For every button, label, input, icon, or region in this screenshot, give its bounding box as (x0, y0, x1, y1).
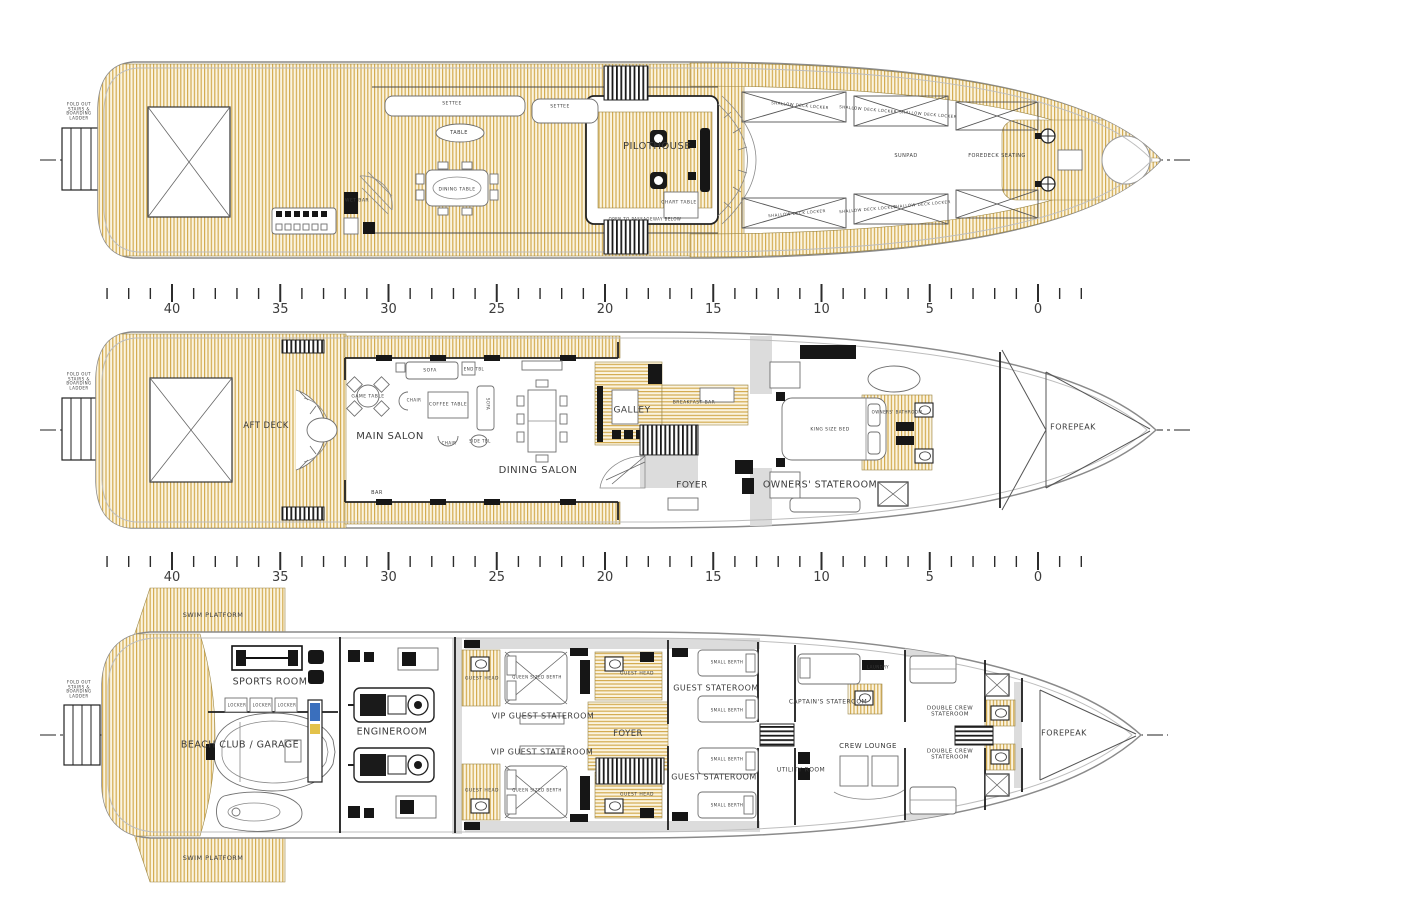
label-lower-deck-double-crew-stateroom: DOUBLE CREW STATEROOM (927, 749, 973, 762)
label-main-deck-breakfast-bar: BREAKFAST BAR (673, 400, 716, 405)
label-main-deck-chair: CHAIR (442, 442, 457, 447)
aft-open-well (150, 378, 232, 482)
label-main-deck-galley: GALLEY (613, 406, 650, 417)
label-lower-deck-locker: LOCKER (253, 704, 272, 709)
label-main-deck-bar: BAR (371, 491, 383, 497)
day-head-fixture (735, 460, 753, 474)
label-lower-deck-swim-platform: SWIM PLATFORM (183, 855, 244, 863)
ruler-1-number-40: 40 (164, 302, 181, 317)
ruler-2-number-30: 30 (380, 570, 397, 585)
anchor-hatch (1058, 150, 1082, 170)
label-lower-deck-locker: LOCKER (228, 704, 247, 709)
label-lower-deck-laundry: LAUNDRY (867, 666, 889, 671)
bridge-side-stairs-stbd (604, 220, 648, 254)
lower-deck-plan (64, 588, 1141, 882)
label-main-deck-forepeak: FOREPEAK (1050, 422, 1096, 431)
label-bridge-deck-fold-out-stairs-boarding-ladder: FOLD OUT STAIRS & BOARDING LADDER (66, 103, 91, 122)
ruler-2-number-15: 15 (705, 570, 722, 585)
label-lower-deck-crew-lounge: CREW LOUNGE (839, 742, 897, 750)
label-lower-deck-guest-stateroom: GUEST STATEROOM (673, 683, 759, 692)
grill (363, 222, 375, 234)
label-bridge-deck-dining-table: DINING TABLE (438, 187, 475, 192)
ruler-2-number-20: 20 (597, 570, 614, 585)
settee-corner (532, 99, 598, 123)
label-bridge-deck-chart-table: CHART TABLE (661, 200, 696, 205)
bridge-open-well (148, 107, 230, 217)
label-lower-deck-sports-room: SPORTS ROOM (233, 676, 308, 687)
label-lower-deck-small-berth: SMALL BERTH (711, 709, 744, 714)
label-lower-deck-beach-club-garage: BEACH CLUB / GARAGE (181, 739, 299, 750)
engine-port (348, 688, 434, 722)
side-deck-teak-stbd (345, 502, 620, 524)
ruler-2-number-10: 10 (813, 570, 830, 585)
label-lower-deck-small-berth: SMALL BERTH (711, 804, 744, 809)
label-bridge-deck-table: TABLE (450, 131, 468, 137)
label-bridge-deck-settee: SETTEE (442, 101, 462, 106)
yacht-general-arrangement: FOLD OUT STAIRS & BOARDING LADDERSETTEES… (0, 0, 1411, 913)
label-main-deck-dining-salon: DINING SALON (499, 465, 578, 477)
label-bridge-deck-wet-bar: WET BAR (345, 198, 369, 203)
wet-bar-cabinet (344, 218, 358, 234)
label-main-deck-end-tbl: END TBL (464, 368, 484, 373)
ruler-1-number-20: 20 (597, 302, 614, 317)
ruler-2-number-40: 40 (164, 570, 181, 585)
ruler-1-number-10: 10 (813, 302, 830, 317)
amidships-stairs (760, 724, 794, 746)
label-main-deck-side-tbl: SIDE TBL (469, 440, 491, 445)
ruler-1-number-25: 25 (488, 302, 505, 317)
label-main-deck-main-salon: MAIN SALON (356, 431, 424, 443)
label-bridge-deck-foredeck-seating: FOREDECK SEATING (968, 154, 1026, 160)
label-bridge-deck-open-to-passageway-below: OPEN TO PASSAGEWAY BELOW (609, 218, 682, 223)
ruler-1-number-0: 0 (1034, 302, 1042, 317)
elevator (878, 482, 908, 506)
label-bridge-deck-sunpad: SUNPAD (894, 154, 917, 160)
label-main-deck-sofa: SOFA (485, 398, 490, 410)
label-bridge-deck-pilothouse: PILOTHOUSE (623, 141, 691, 153)
main-stairs (640, 425, 698, 455)
label-main-deck-king-size-bed: KING SIZE BED (810, 427, 849, 432)
label-lower-deck-foyer: FOYER (613, 729, 643, 739)
label-lower-deck-small-berth: SMALL BERTH (711, 661, 744, 666)
label-bridge-deck-settee: SETTEE (550, 104, 570, 109)
fuel-tank (308, 700, 322, 782)
ruler-1-number-35: 35 (272, 302, 289, 317)
ruler-2-number-25: 25 (488, 570, 505, 585)
label-main-deck-aft-deck: AFT DECK (243, 421, 288, 431)
stern-teak (100, 634, 215, 836)
label-lower-deck-captain-s-stateroom: CAPTAIN'S STATEROOM (789, 698, 867, 705)
crew-bunk (910, 787, 956, 814)
label-lower-deck-guest-head: GUEST HEAD (465, 676, 499, 681)
label-lower-deck-utility-room: UTILITY ROOM (777, 766, 825, 773)
ruler-2-number-5: 5 (926, 570, 934, 585)
aft-side-stairs-stbd (282, 507, 324, 520)
label-main-deck-foyer: FOYER (676, 481, 707, 492)
label-main-deck-sofa: SOFA (423, 368, 436, 373)
label-main-deck-owners-stateroom: OWNERS' STATEROOM (763, 479, 877, 490)
side-deck-teak-port (345, 336, 620, 358)
label-main-deck-owners-bathroom: OWNERS' BATHROOM (872, 411, 923, 416)
label-lower-deck-vip-guest-stateroom: VIP GUEST STATEROOM (492, 711, 595, 720)
helm-console (700, 128, 710, 192)
label-lower-deck-swim-platform: SWIM PLATFORM (183, 612, 244, 620)
crew-table (872, 756, 898, 786)
ruler-1-number-5: 5 (926, 302, 934, 317)
label-main-deck-game-table: GAME TABLE (351, 394, 384, 399)
bar-with-stools (272, 208, 336, 234)
crew-table (840, 756, 868, 786)
label-lower-deck-guest-head: GUEST HEAD (620, 792, 654, 797)
label-lower-deck-vip-guest-stateroom: VIP GUEST STATEROOM (491, 747, 594, 756)
ruler-1-number-30: 30 (380, 302, 397, 317)
label-main-deck-chair: CHAIR (407, 399, 422, 404)
jet-ski (217, 792, 303, 831)
main-deck-plan (62, 332, 1156, 528)
foyer-cabinet (668, 498, 698, 510)
bridge-deck-plan (62, 62, 1161, 258)
label-lower-deck-queen-sized-berth: QUEEN SIZED BERTH (512, 676, 562, 681)
ruler-2-number-0: 0 (1034, 570, 1042, 585)
bridge-side-stairs-port (604, 66, 648, 100)
label-main-deck-fold-out-stairs-boarding-ladder: FOLD OUT STAIRS & BOARDING LADDER (66, 373, 91, 392)
foyer-stairs (596, 758, 664, 784)
aft-side-stairs-port (282, 340, 324, 353)
label-main-deck-coffee-table: COFFEE TABLE (429, 402, 467, 407)
crew-stairs (955, 726, 993, 745)
label-lower-deck-fold-out-stairs-boarding-ladder: FOLD OUT STAIRS & BOARDING LADDER (66, 681, 91, 700)
label-lower-deck-locker: LOCKER (278, 704, 297, 709)
label-lower-deck-forepeak: FOREPEAK (1041, 728, 1087, 737)
label-lower-deck-double-crew-stateroom: DOUBLE CREW STATEROOM (927, 706, 973, 719)
label-lower-deck-guest-head: GUEST HEAD (620, 671, 654, 676)
crew-bunk (910, 656, 956, 683)
label-lower-deck-engineroom: ENGINEROOM (357, 726, 428, 737)
label-lower-deck-queen-sized-berth: QUEEN SIZED BERTH (512, 789, 562, 794)
ruler-1-number-15: 15 (705, 302, 722, 317)
ruler-2-number-35: 35 (272, 570, 289, 585)
label-lower-deck-guest-head: GUEST HEAD (465, 788, 499, 793)
label-lower-deck-small-berth: SMALL BERTH (711, 758, 744, 763)
engine-stbd (348, 748, 434, 782)
label-lower-deck-guest-stateroom: GUEST STATEROOM (671, 772, 757, 781)
